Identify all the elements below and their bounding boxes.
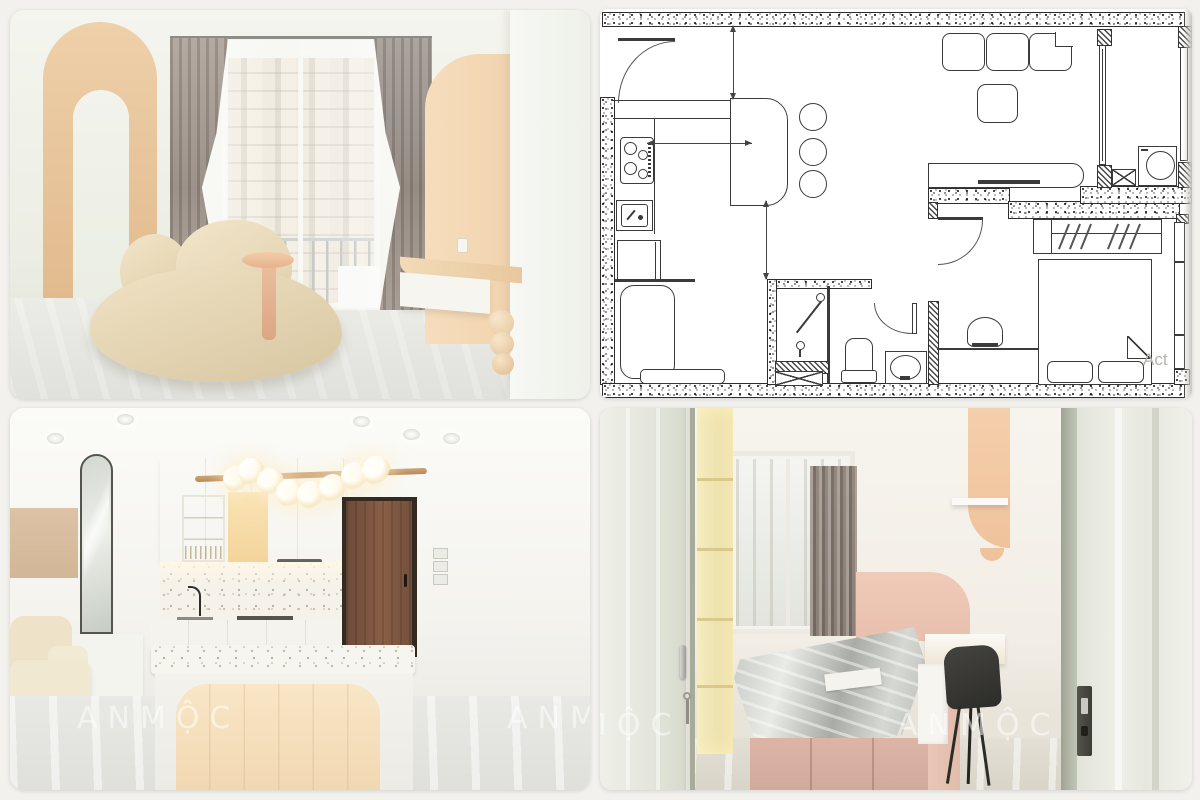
collage-page: { "meta": { "title": "Apartment interior…: [0, 0, 1200, 800]
kitchen-counter-edge-3: [654, 118, 655, 234]
living-room-photo[interactable]: [10, 10, 590, 399]
wardrobe: [1033, 219, 1162, 254]
door-lock-plate: [1077, 686, 1092, 756]
kitchen-photo[interactable]: ANMỘC ANMỘC: [10, 408, 590, 790]
dim-arrow-right: [745, 140, 752, 146]
open-door-right-edge: [1061, 408, 1077, 790]
stemware-row: [185, 546, 222, 559]
vanity-faucet: [900, 376, 910, 380]
bedroom-window-mullion: [786, 459, 790, 626]
ceiling-spot-2: [117, 414, 134, 425]
watermark-brand-partial-left: ANMỘC: [600, 708, 681, 743]
wc-door-swing-arc: [874, 303, 912, 334]
watermark-brand-partial-right: ANMỘC: [507, 701, 590, 736]
bedroom-door-swing-arc: [938, 220, 983, 265]
entry-door-leaf: [618, 38, 675, 41]
curved-sofa: [90, 220, 348, 382]
pendant-globe-8: [362, 456, 391, 485]
kitchen-sink-basin: [621, 204, 648, 227]
light-switch-3: [433, 574, 448, 585]
tan-wall-band: [10, 508, 78, 578]
plan-wall-stub: [928, 202, 938, 219]
bed-pillow-2: [1098, 361, 1144, 383]
dim-line-horizontal: [647, 143, 752, 144]
sphere-leg-3: [492, 353, 514, 375]
white-wall-column: [510, 10, 590, 399]
watermark-brand-2: ANMỘC: [897, 708, 1060, 743]
door-lock-latch: [1081, 698, 1088, 714]
dim-arrow-left: [647, 140, 654, 146]
dim-arrow-up-2: [763, 200, 769, 207]
door-lock-keyhole: [1081, 726, 1088, 736]
tv-set: [978, 180, 1040, 184]
island-arch-inset: [176, 684, 380, 790]
entry-door-swing-arc: [618, 41, 675, 103]
plan-corner-note: Act: [1143, 350, 1168, 370]
kitchen-counter-edge-2: [613, 118, 731, 119]
door-groove-2: [1152, 408, 1159, 790]
balcony-col-1: [1097, 29, 1112, 46]
plan-paper-edge: [1183, 9, 1192, 398]
plan-wall-bottom: [602, 383, 1185, 398]
plan-wall-left: [600, 97, 615, 385]
bar-stool-1: [799, 103, 827, 131]
kitchen-faucet: [188, 586, 201, 616]
shelf-line-4: [697, 685, 733, 688]
bar-stool-2: [799, 138, 827, 166]
door-handle: [404, 574, 407, 587]
bed-drawers-front: [750, 738, 930, 790]
wall-shelf: [952, 498, 1008, 505]
balcony-col-2: [1097, 165, 1112, 188]
sofa-seat-1: [942, 33, 985, 71]
dim-line-vertical-1: [733, 26, 734, 99]
dim-line-vertical-2: [766, 201, 767, 279]
kitchen-counter-edge-1: [613, 100, 731, 101]
toilet-base: [841, 370, 877, 383]
sink-drain: [638, 215, 643, 220]
wooden-door: [346, 501, 412, 654]
light-switch-1: [433, 548, 448, 559]
plan-wall-balcony-bottom: [1080, 186, 1192, 204]
shelf-line-1: [697, 478, 733, 481]
shower-valve-tick: [799, 350, 801, 357]
shower-valve: [796, 341, 805, 350]
shaft-x-box: [1112, 169, 1136, 186]
island-counter: [730, 98, 788, 206]
toilet-bowl: [845, 338, 873, 374]
door-keys: [686, 698, 689, 724]
shelf-line-3: [697, 618, 733, 621]
shower-head: [816, 293, 825, 302]
table-shelf-bar: [615, 279, 695, 282]
shower-wand: [796, 301, 822, 334]
light-switch-2: [433, 561, 448, 572]
ceiling-spot-5: [443, 433, 460, 444]
plan-wall-top: [602, 12, 1185, 27]
burner-3: [624, 162, 637, 175]
sofa-corner-notch: [1055, 32, 1073, 47]
black-chair-shell: [943, 644, 1002, 710]
door-handle-bar: [680, 645, 686, 679]
peach-arch-wall: [968, 408, 1010, 548]
cooktop-grill: [648, 143, 651, 177]
plan-wall-wc-right: [928, 301, 939, 385]
bed-pillow-1: [1047, 361, 1093, 383]
wall-outlet: [457, 238, 468, 253]
tv-console: [928, 163, 1084, 188]
door-key-ring: [683, 692, 691, 700]
sofa-seat-2: [986, 33, 1029, 71]
desk-edge: [937, 348, 1038, 350]
dim-arrow-down-1: [730, 93, 736, 100]
bedroom-curtain: [810, 466, 857, 636]
washing-machine-drum: [1146, 151, 1175, 180]
wardrobe-rail: [1051, 233, 1162, 234]
bath-cabinet-x: [775, 371, 823, 386]
bench: [640, 369, 725, 384]
burner-2: [638, 150, 648, 160]
coffee-table: [977, 84, 1018, 123]
burner-1: [624, 142, 637, 155]
open-door-right-face: [1077, 408, 1192, 790]
ceiling-spot-4: [403, 429, 420, 440]
wardrobe-divider: [1051, 219, 1052, 254]
lit-niche: [228, 492, 268, 562]
bedroom-photo[interactable]: ANMỘC ANMỘC: [600, 408, 1192, 790]
island-counter-slab: [151, 645, 415, 674]
sofa-body: [90, 268, 342, 382]
mirror-reflection-streak: [84, 463, 109, 628]
ceiling-spot-1: [47, 433, 64, 444]
side-table-top: [242, 252, 294, 268]
shelf-line-2: [697, 548, 733, 551]
watermark-brand: ANMỘC: [77, 701, 240, 736]
balcony-window-left-mid: [1102, 49, 1103, 161]
cabinet-door-line: [655, 242, 656, 279]
shelf-unit: [697, 408, 733, 754]
peach-half-disc: [980, 548, 1004, 561]
floor-plan-drawing[interactable]: Act: [600, 9, 1192, 398]
washing-machine-panel: [1141, 149, 1148, 151]
dim-arrow-up-1: [730, 25, 736, 32]
burner-4: [638, 169, 648, 179]
door-edge-line: [690, 408, 695, 790]
ceiling-spot-3: [353, 416, 370, 427]
wc-door-leaf: [912, 303, 917, 334]
plan-wall-tv: [928, 188, 1010, 204]
door-groove-1: [1115, 408, 1122, 790]
plan-wall-bath-top: [767, 279, 872, 289]
desk-chair-seat: [972, 343, 998, 346]
side-table-stem: [262, 260, 276, 340]
dining-table: [620, 285, 675, 379]
bar-stool-3: [799, 170, 827, 198]
